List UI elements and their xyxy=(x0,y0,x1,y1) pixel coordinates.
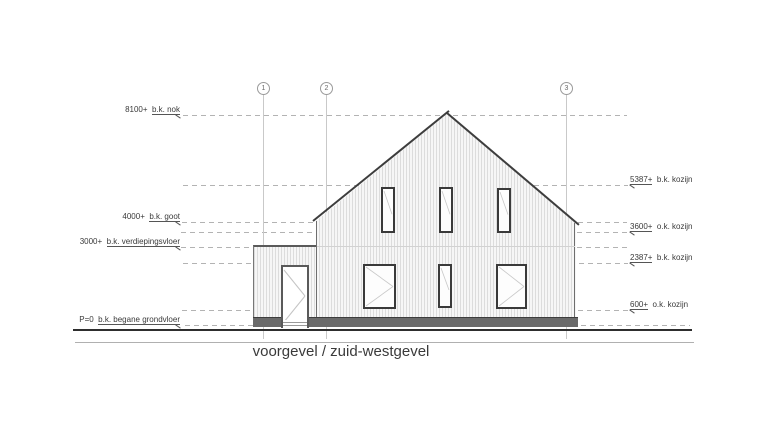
elevation-drawing: voorgevel / zuid-westgevel 1238100+ b.k.… xyxy=(0,0,768,432)
dim-value: 4000+ xyxy=(122,212,144,221)
window-glass-lines xyxy=(441,189,451,231)
dim-value: 3600+ xyxy=(630,222,652,232)
window-glass-lines xyxy=(440,266,450,306)
dim-value: 8100+ xyxy=(125,105,147,114)
ground-line xyxy=(73,329,692,331)
drawing-title: voorgevel / zuid-westgevel xyxy=(241,343,441,360)
dim-label-P0: P=0 b.k. begane grondvloer xyxy=(79,315,180,325)
window-lower-right xyxy=(496,264,527,309)
dim-value: P=0 xyxy=(79,315,93,324)
plinth-annex-left xyxy=(253,317,281,327)
window-upper-right xyxy=(497,188,511,233)
dim-value: 600+ xyxy=(630,300,648,310)
grid-bubble-1: 1 xyxy=(257,82,270,95)
door-threshold xyxy=(283,320,307,328)
dim-label-3000: 3000+ b.k. verdiepingsvloer xyxy=(80,237,180,247)
dim-label-4000: 4000+ b.k. goot xyxy=(122,212,180,222)
dim-description: b.k. goot xyxy=(149,212,180,222)
dim-value: 5387+ xyxy=(630,175,652,185)
window-lower-middle xyxy=(438,264,452,308)
window-glass-lines xyxy=(365,266,394,307)
dim-description: b.k. kozijn xyxy=(657,253,693,262)
entrance-door xyxy=(281,265,309,328)
window-upper-middle xyxy=(439,187,453,233)
wall-edge-left xyxy=(316,221,317,317)
window-glass-lines xyxy=(498,266,525,307)
dim-description: b.k. verdiepingsvloer xyxy=(107,237,180,247)
wall-edge-right xyxy=(574,223,575,317)
dim-description: b.k. nok xyxy=(152,105,180,115)
window-upper-left xyxy=(381,187,395,233)
dim-label-3600: 3600+ o.k. kozijn xyxy=(630,222,693,232)
window-glass-lines xyxy=(499,190,509,231)
dim-label-5387: 5387+ b.k. kozijn xyxy=(630,175,693,185)
dim-label-8100: 8100+ b.k. nok xyxy=(125,105,180,115)
dim-value: 3000+ xyxy=(80,237,102,246)
dim-description: o.k. kozijn xyxy=(657,222,693,231)
plinth-main xyxy=(317,317,578,327)
dim-description: b.k. kozijn xyxy=(657,175,693,184)
dim-description: o.k. kozijn xyxy=(652,300,688,309)
dim-value: 2387+ xyxy=(630,253,652,263)
dim-label-2387: 2387+ b.k. kozijn xyxy=(630,253,693,263)
dimension-line-nok xyxy=(183,115,627,116)
dim-description: b.k. begane grondvloer xyxy=(98,315,180,325)
door-swing-lines xyxy=(283,267,307,326)
grid-bubble-2: 2 xyxy=(320,82,333,95)
window-glass-lines xyxy=(383,189,393,231)
plinth-annex-right xyxy=(309,317,317,327)
facade-joint-line xyxy=(317,246,575,247)
grid-bubble-3: 3 xyxy=(560,82,573,95)
window-lower-left xyxy=(363,264,396,309)
dim-label-600: 600+ o.k. kozijn xyxy=(630,300,688,310)
